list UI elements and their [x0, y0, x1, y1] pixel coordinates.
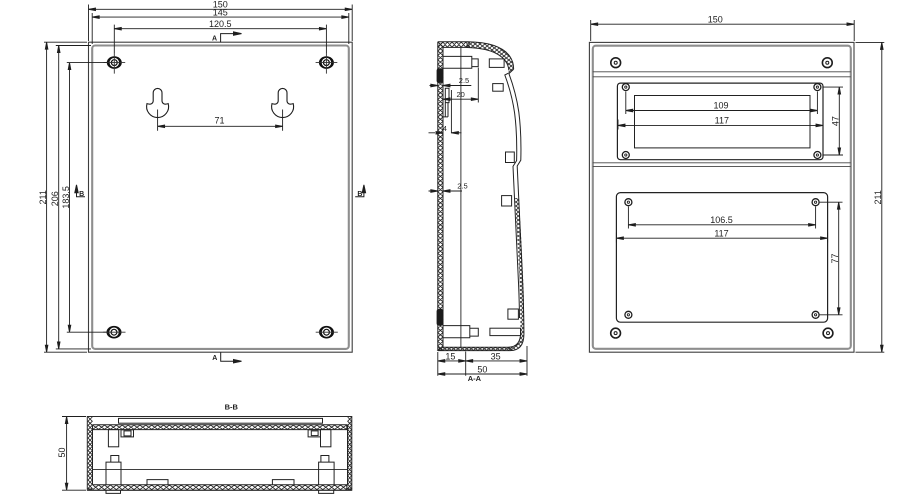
svg-text:B-B: B-B	[225, 402, 239, 411]
svg-text:50: 50	[57, 447, 67, 457]
svg-text:211: 211	[38, 190, 48, 204]
svg-text:2.5: 2.5	[457, 181, 467, 190]
svg-text:145: 145	[213, 8, 228, 18]
svg-text:150: 150	[708, 15, 723, 25]
svg-text:117: 117	[714, 228, 728, 238]
svg-text:35: 35	[491, 352, 501, 362]
svg-text:B: B	[357, 191, 362, 198]
svg-text:109: 109	[713, 101, 728, 111]
svg-text:211: 211	[873, 190, 883, 204]
svg-text:71: 71	[214, 115, 224, 125]
svg-text:120.5: 120.5	[209, 19, 232, 29]
svg-text:206: 206	[50, 191, 60, 206]
svg-text:B: B	[79, 191, 84, 198]
svg-text:2.5: 2.5	[459, 76, 469, 85]
svg-text:20: 20	[457, 90, 465, 99]
svg-text:47: 47	[830, 116, 840, 126]
svg-text:106.5: 106.5	[710, 215, 733, 225]
svg-text:A-A: A-A	[468, 374, 482, 383]
svg-text:A: A	[212, 355, 217, 362]
svg-text:A: A	[212, 36, 217, 43]
svg-text:4: 4	[443, 124, 447, 133]
svg-text:183.5: 183.5	[61, 186, 71, 209]
svg-text:117: 117	[715, 116, 729, 126]
svg-text:15: 15	[445, 352, 455, 362]
svg-text:77: 77	[830, 253, 840, 263]
